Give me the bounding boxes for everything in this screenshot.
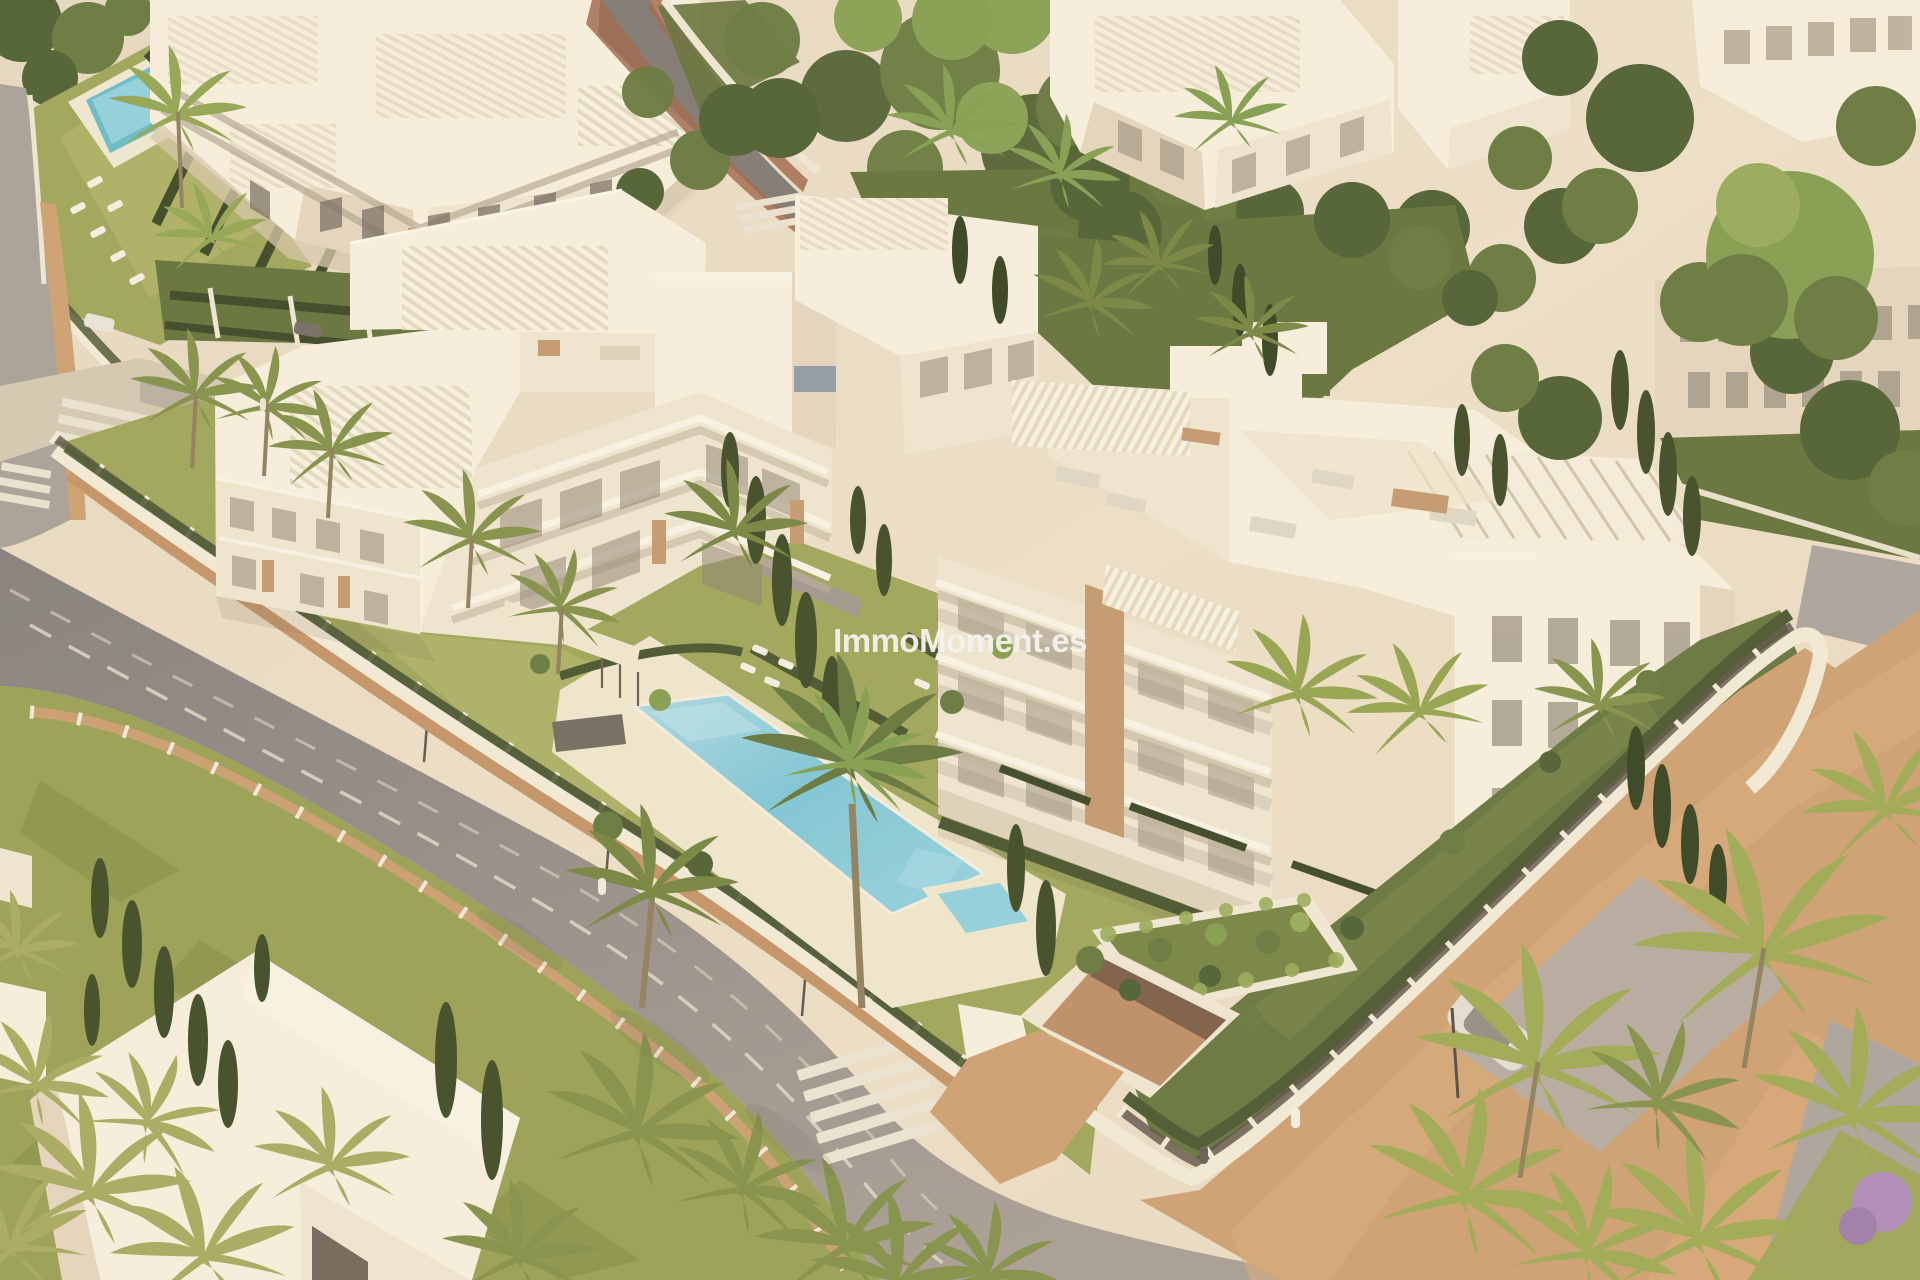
svg-text:ImmoMoment.es: ImmoMoment.es [833,622,1087,659]
